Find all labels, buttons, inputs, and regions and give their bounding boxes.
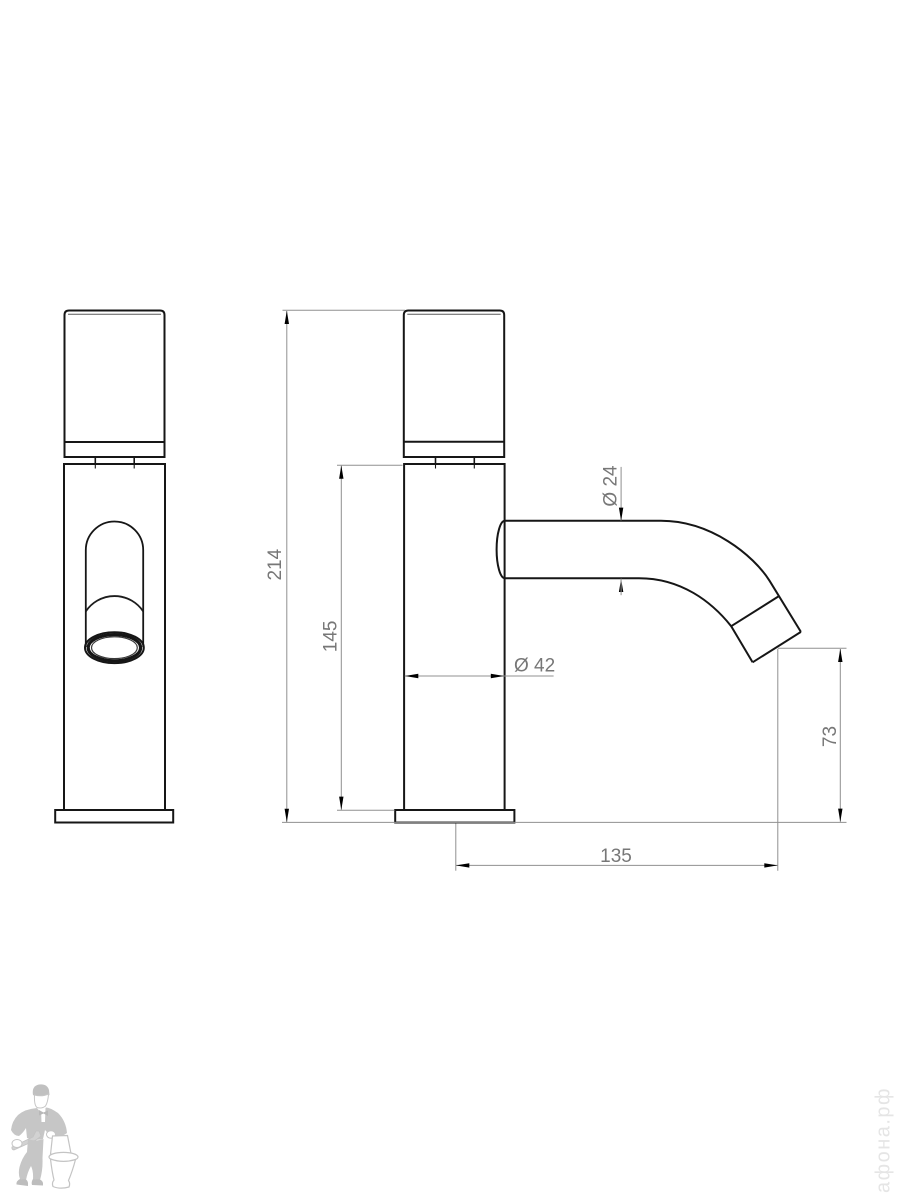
svg-text:214: 214: [265, 548, 286, 580]
svg-text:135: 135: [600, 846, 632, 867]
svg-text:145: 145: [320, 621, 341, 653]
svg-text:Ø 24: Ø 24: [601, 465, 622, 507]
svg-text:афона.рф: афона.рф: [873, 1087, 895, 1193]
svg-text:Ø 42: Ø 42: [514, 656, 555, 677]
svg-text:73: 73: [820, 726, 841, 747]
